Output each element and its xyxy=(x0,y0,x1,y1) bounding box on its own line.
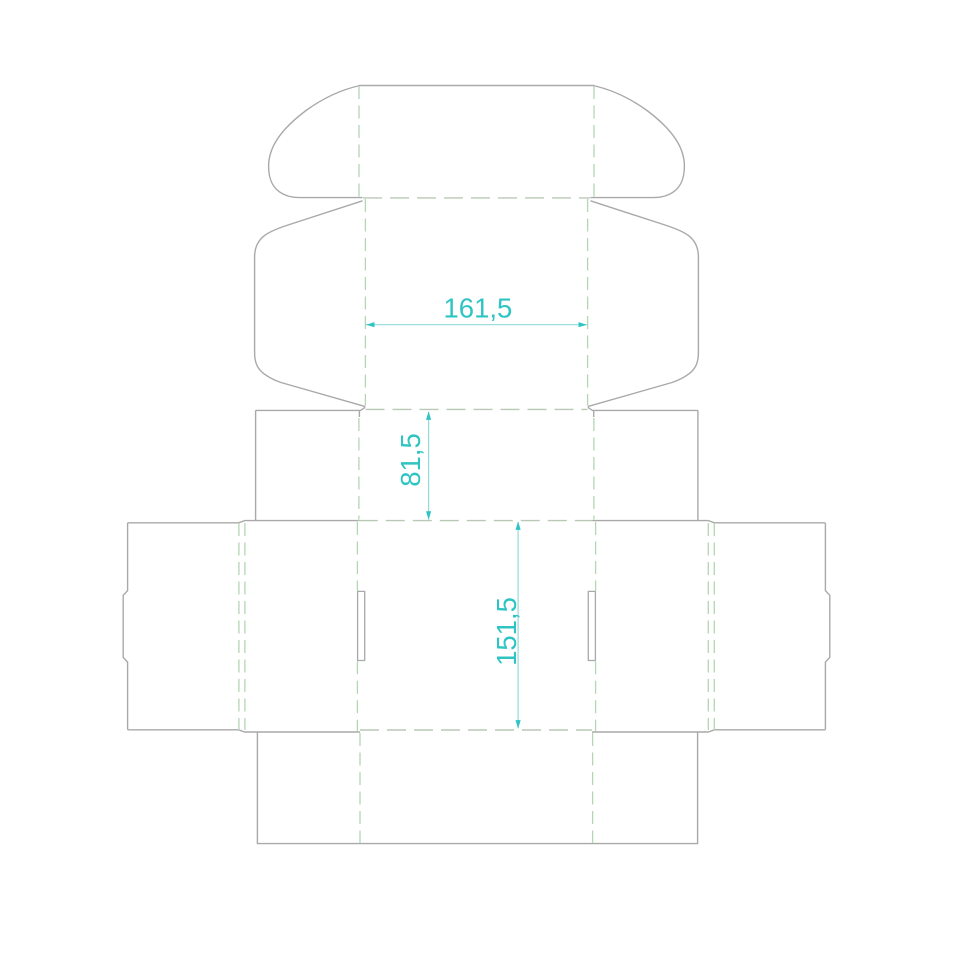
svg-text:151,5: 151,5 xyxy=(491,597,522,666)
svg-text:81,5: 81,5 xyxy=(395,433,426,487)
svg-text:161,5: 161,5 xyxy=(443,292,512,323)
